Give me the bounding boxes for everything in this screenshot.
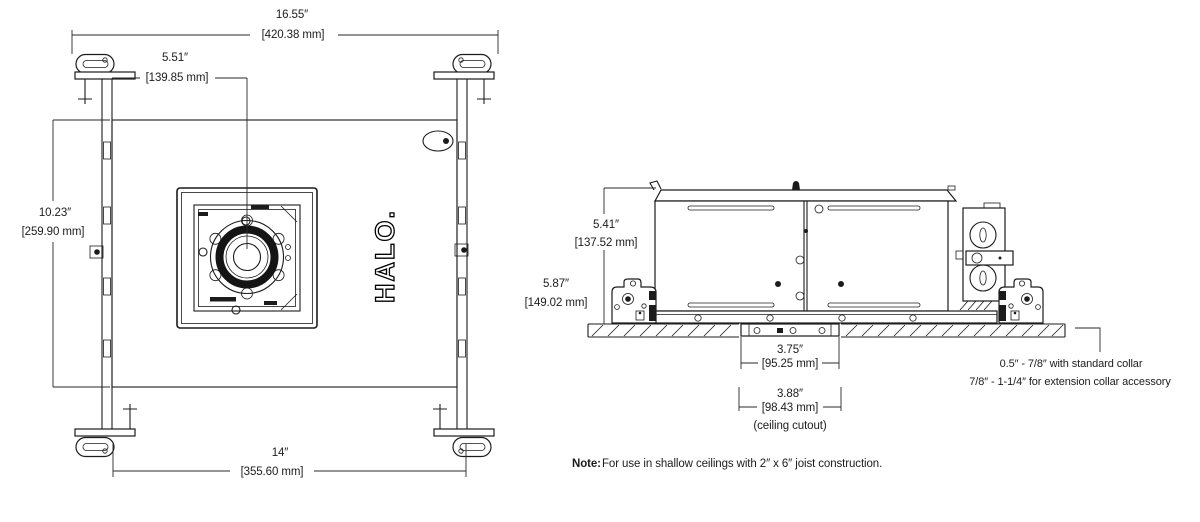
- dim-plan-center-offset-in: 5.51″: [162, 52, 188, 64]
- dim-plan-overall-width-mm: [420.38 mm]: [262, 29, 325, 41]
- dim-side-ceiling-cutout: 3.88″ [98.43 mm] (ceiling cutout): [739, 387, 841, 432]
- technical-drawing-page: HALO. 16.55″ [420.38 mm] 5.51″ [139.85 m…: [0, 0, 1200, 522]
- brand-logo-text: HALO.: [370, 209, 400, 303]
- dim-side-housing-height-mm: [137.52 mm]: [575, 237, 638, 249]
- plan-view: HALO. 16.55″ [420.38 mm] 5.51″ [139.85 m…: [22, 9, 498, 478]
- butterfly-bracket-bottom-left: [75, 404, 137, 457]
- dim-plan-frame-width-in: 14″: [272, 447, 289, 459]
- dim-plan-frame-width-mm: [355.60 mm]: [241, 466, 304, 478]
- dim-side-ceiling-cutout-mm: [98.43 mm]: [762, 402, 819, 414]
- dim-plan-frame-width: 14″ [355.60 mm]: [113, 444, 466, 478]
- dim-side-collar-width-mm: [95.25 mm]: [762, 358, 819, 370]
- housing-box: [650, 181, 956, 311]
- halo-recessed-fixture-drawing: HALO. 16.55″ [420.38 mm] 5.51″ [139.85 m…: [0, 0, 1200, 522]
- dim-plan-center-offset-mm: [139.85 mm]: [146, 72, 209, 84]
- footnote-text: For use in shallow ceilings with 2″ x 6″…: [602, 458, 882, 470]
- butterfly-bracket-bottom-right: [433, 404, 494, 457]
- dim-plan-overall-width: 16.55″ [420.38 mm]: [72, 9, 498, 54]
- dim-plan-overall-width-in: 16.55″: [276, 9, 308, 21]
- pan-rail: [645, 311, 997, 323]
- dim-side-collar-width-in: 3.75″: [777, 344, 803, 356]
- collar-note-line2: 7/8″ - 1-1/4″ for extension collar acces…: [969, 376, 1171, 388]
- mounting-frame: [90, 120, 468, 387]
- butterfly-bracket-top-right: [434, 55, 494, 105]
- dim-side-collar-width: 3.75″ [95.25 mm]: [741, 337, 839, 370]
- footnote: Note: For use in shallow ceilings with 2…: [572, 458, 882, 470]
- hanger-bars: [102, 79, 467, 429]
- dim-side-overall-height: 5.87″ [149.02 mm]: [525, 278, 588, 309]
- dim-side-ceiling-cutout-in: 3.88″: [777, 388, 803, 400]
- dim-side-ceiling-cutout-caption: (ceiling cutout): [753, 420, 826, 432]
- footnote-label: Note:: [572, 458, 601, 470]
- dim-side-overall-height-in: 5.87″: [543, 278, 569, 290]
- butterfly-bracket-top-left: [75, 55, 135, 105]
- dim-side-housing-height-in: 5.41″: [593, 219, 619, 231]
- dim-plan-frame-depth-mm: [259.90 mm]: [22, 226, 85, 238]
- mounting-bracket-left: [612, 279, 656, 323]
- collar-note-line1: 0.5″ - 7/8″ with standard collar: [1000, 358, 1143, 370]
- trim-collar: [741, 324, 839, 336]
- side-view: 5.41″ [137.52 mm] 5.87″ [149.02 mm] 3.75…: [525, 181, 1172, 432]
- dim-plan-center-offset: 5.51″ [139.85 mm]: [112, 52, 247, 249]
- dim-side-overall-height-mm: [149.02 mm]: [525, 297, 588, 309]
- dim-plan-frame-depth-in: 10.23″: [39, 207, 71, 219]
